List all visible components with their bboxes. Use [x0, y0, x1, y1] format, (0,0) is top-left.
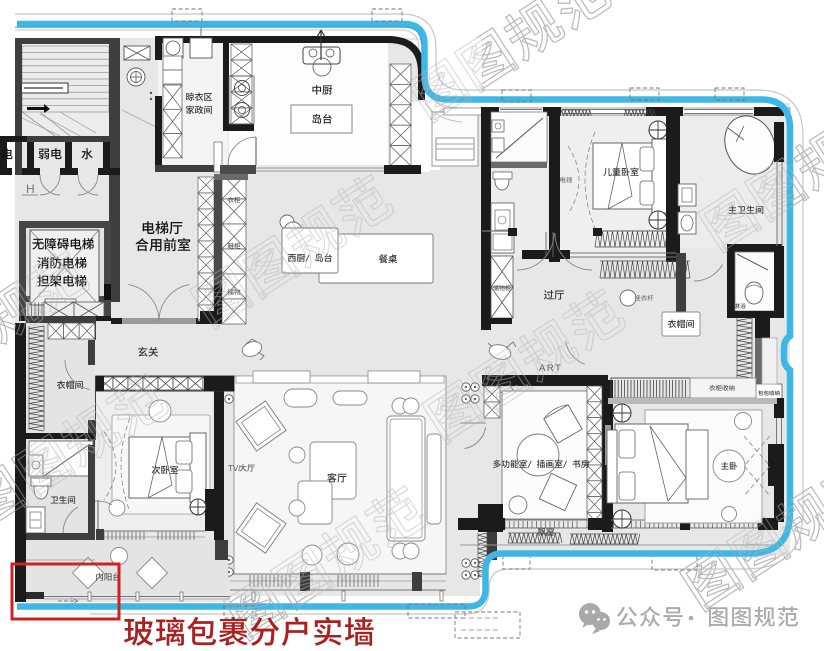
svg-text:TV/: TV/: [228, 464, 241, 473]
svg-text:H: H: [26, 182, 35, 196]
